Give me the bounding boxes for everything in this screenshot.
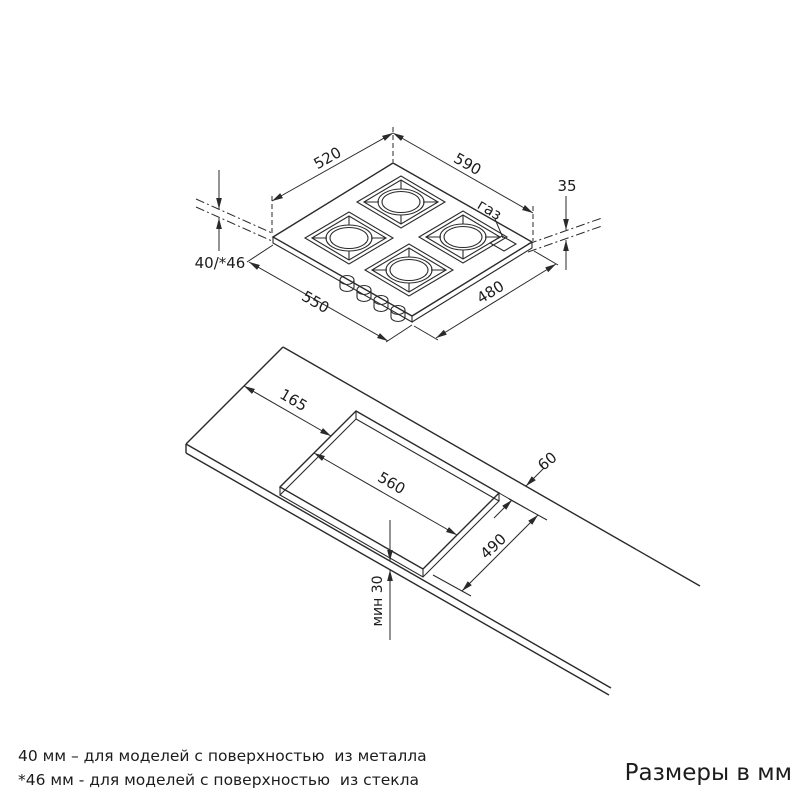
footnote-metal-surface: 40 мм – для моделей с поверхностью из ме…: [18, 747, 427, 765]
burner-ring-inner: [382, 192, 420, 213]
burner-front: [365, 244, 453, 296]
burner-support-arms: [364, 180, 438, 224]
footnote-glass-surface: *46 мм - для моделей с поверхностью из с…: [18, 771, 419, 789]
dim-line-60-upper: [526, 468, 544, 486]
knob: [357, 286, 371, 302]
burner-ring-outer: [378, 189, 424, 215]
burner-ring-inner: [444, 227, 482, 248]
burner-ring-inner: [330, 228, 368, 249]
dim-ext-490-front: [433, 575, 471, 596]
burner-ring-outer: [386, 257, 432, 283]
burner-back: [357, 176, 445, 228]
countertop-outline: [186, 347, 700, 695]
gas-connection-plate: [490, 236, 516, 251]
dim-line-520: [272, 133, 393, 201]
units-label: Размеры в мм: [625, 760, 792, 786]
counter-level-lines: [196, 199, 602, 252]
knob: [340, 276, 354, 292]
hob-isometric-drawing: газ 520 590 35 40/*46: [195, 127, 602, 342]
dim-label-back-offset: 60: [534, 448, 560, 474]
dim-label-left-offset: 165: [277, 385, 311, 415]
control-knobs: [340, 276, 405, 322]
technical-drawing-canvas: газ 520 590 35 40/*46: [0, 0, 800, 800]
burner-ring-outer: [440, 224, 486, 250]
burner-support-arms: [426, 215, 500, 259]
countertop-cutout-drawing: 165 560 60 490 мин 30: [186, 347, 700, 695]
burner-support-arms: [312, 216, 386, 260]
dim-line-590: [393, 133, 533, 213]
installation-drawing-page: газ 520 590 35 40/*46: [0, 0, 800, 800]
dim-line-560: [314, 453, 457, 535]
notes-block: 40 мм – для моделей с поверхностью из ме…: [18, 747, 427, 789]
dim-label-body-width: 550: [299, 287, 333, 317]
burner-support-arms: [372, 248, 446, 292]
dim-label-top-width: 520: [311, 143, 345, 173]
burner-left: [305, 212, 393, 264]
dim-label-install-depth: 40/*46: [195, 254, 246, 272]
burner-ring-outer: [326, 225, 372, 251]
dim-label-top-depth: 590: [451, 149, 485, 179]
gas-label: газ: [474, 196, 505, 224]
extension-lines: [247, 127, 558, 342]
dim-ext-490-back: [509, 499, 547, 520]
dim-label-front-min: мин 30: [370, 575, 386, 626]
dim-label-height-above: 35: [557, 177, 576, 195]
counter-left-edge: [186, 347, 283, 444]
dim-label-cutout-length: 560: [375, 468, 409, 498]
dim-line-480: [436, 264, 556, 338]
dim-label-cutout-width: 490: [477, 530, 510, 563]
burner-ring-inner: [390, 260, 428, 281]
